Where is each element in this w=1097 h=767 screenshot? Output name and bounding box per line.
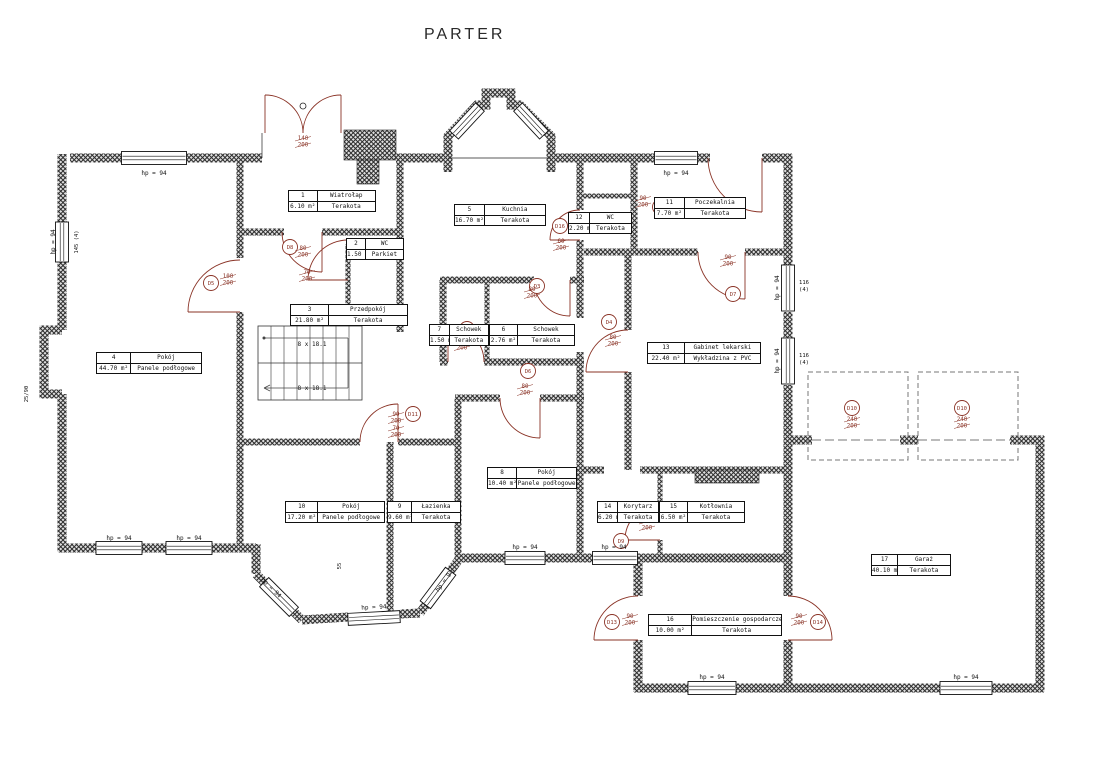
- window-frame: [122, 152, 187, 165]
- door-tag-label: D10: [847, 406, 857, 412]
- door-tag-label: D6: [525, 369, 532, 375]
- door: [586, 330, 628, 372]
- door-dimension: 240200: [844, 417, 860, 430]
- door-dimension-text: 90: [393, 412, 400, 418]
- door-swing-arc: [586, 330, 628, 372]
- window: [122, 152, 187, 165]
- window: [348, 611, 401, 626]
- door-tag: D13: [605, 615, 620, 630]
- door-dimension-text: 200: [457, 346, 468, 352]
- annotation-label: hp = 94: [361, 603, 387, 611]
- room-name: Pokój: [131, 353, 201, 363]
- room-material: Parkiet: [366, 250, 403, 260]
- room-area: 22.40 m²: [648, 354, 685, 364]
- room-table-kuchnia: 5Kuchnia 16.70 m²Terakota: [454, 204, 546, 226]
- wall-segment: [44, 330, 62, 394]
- room-name: Wiatrołap: [318, 191, 375, 201]
- door-dimension-text: 90: [627, 614, 634, 620]
- door-tag: D14: [811, 615, 826, 630]
- door-dimension: 70200: [299, 270, 315, 283]
- door-swing-arc: [303, 95, 341, 133]
- window-frame: [166, 542, 212, 555]
- door-dimension-text: 90: [725, 255, 732, 261]
- room-name: Poczekalnia: [685, 198, 745, 208]
- room-name: Pokój: [318, 502, 384, 512]
- door-tag-label: D5: [208, 281, 215, 287]
- window: [166, 542, 212, 555]
- window: [655, 152, 698, 165]
- room-table-kotlownia: 15Kotłownia 6.50 m²Terakota: [659, 501, 745, 523]
- wall-segment: [344, 130, 396, 160]
- door-dimension-text: 200: [847, 424, 858, 430]
- window: [940, 682, 992, 695]
- door: [500, 398, 540, 438]
- room-material: Panele podłogowe: [318, 513, 384, 523]
- room-area: 2.76 m²: [490, 336, 518, 346]
- room-number: 12: [569, 213, 590, 223]
- room-number: 1: [289, 191, 318, 201]
- door-dimension-text: 80: [529, 287, 536, 293]
- room-table-lazienka: 9Łazienka 9.60 m²Terakota: [387, 501, 461, 523]
- door-dimension-text: 200: [527, 294, 538, 300]
- room-number: 5: [455, 205, 485, 215]
- window: [505, 552, 545, 565]
- door-dimension-text: 200: [608, 342, 619, 348]
- room-table-pokoj-10: 10Pokój 17.20 m²Panele podłogowe: [285, 501, 385, 523]
- window-frame: [56, 222, 69, 262]
- door-tag-label: D16: [555, 224, 565, 230]
- window-frame: [940, 682, 992, 695]
- room-number: 2: [347, 239, 366, 249]
- wall-segment: [302, 617, 348, 620]
- stair-arrow-start: [263, 337, 266, 340]
- room-table-gospodarcze: 16Pomieszczenie gospodarcze 10.00 m²Tera…: [648, 614, 782, 636]
- door-tag: D5: [204, 276, 219, 291]
- window: [782, 338, 795, 384]
- room-area: 16.70 m²: [455, 216, 485, 226]
- door-tag: D10: [955, 401, 970, 416]
- window-frame: [96, 542, 142, 555]
- door-dimension-text: 200: [298, 143, 309, 149]
- door-dimension-text: 140: [298, 136, 309, 142]
- room-material: Panele podłogowe: [131, 364, 201, 374]
- room-name: Pomieszczenie gospodarcze: [692, 615, 781, 625]
- door: [265, 95, 303, 133]
- room-area: 40.10 m²: [872, 566, 898, 576]
- annotation-label: hp = 94: [141, 170, 167, 177]
- room-material: Terakota: [412, 513, 460, 523]
- door-dimension-text: 80: [300, 246, 307, 252]
- wall-segment: [695, 470, 759, 483]
- room-area: 1.50 m²: [430, 336, 450, 346]
- room-table-wc-2: 2WC 1.50 m²Parkiet: [346, 238, 404, 260]
- room-material: Terakota: [318, 202, 375, 212]
- window: [56, 222, 69, 262]
- door-tag-label: D13: [607, 620, 617, 626]
- room-name: Łazienka: [412, 502, 460, 512]
- annotation-label: hp = 94: [50, 229, 57, 255]
- room-name: Korytarz: [618, 502, 658, 512]
- annotation-label: 25/90: [24, 386, 30, 403]
- door-dimension-text: 240: [847, 417, 858, 423]
- door-knob-icon: [300, 103, 306, 109]
- room-material: Wykładzina z PVC: [685, 354, 760, 364]
- annotation-label: hp = 94: [176, 535, 202, 542]
- door-dimension-text: 200: [302, 277, 313, 283]
- window-frame: [514, 103, 549, 139]
- room-number: 7: [430, 325, 450, 335]
- page-title: PARTER: [424, 26, 505, 44]
- door-tag: D6: [521, 364, 536, 379]
- door-dimension-text: 200: [957, 424, 968, 430]
- room-area: 10.00 m²: [649, 626, 692, 636]
- room-area: 10.40 m²: [488, 479, 517, 489]
- door-dimension-text: 80: [522, 384, 529, 390]
- annotation-label: 116: [799, 353, 809, 359]
- door-tag: D8: [283, 240, 298, 255]
- door-dimension-text: 70: [304, 270, 311, 276]
- room-name: Schowek: [518, 325, 574, 335]
- window-frame: [782, 338, 795, 384]
- room-area: 7.70 m²: [655, 209, 685, 219]
- room-area: 6.50 m²: [660, 513, 688, 523]
- annotation-label: hp = 94: [953, 674, 979, 681]
- room-material: Terakota: [688, 513, 744, 523]
- windows-layer: [56, 103, 993, 694]
- room-number: 6: [490, 325, 518, 335]
- door-dimension: 90200: [791, 614, 807, 627]
- door-tag-label: D14: [813, 620, 824, 626]
- room-name: Gabinet lekarski: [685, 343, 760, 353]
- door-dimension: 140200: [295, 136, 311, 149]
- floorplan-page: PARTER D8D2D5D3D4D6D7D12D16D11D13D14D9D1…: [0, 0, 1097, 767]
- room-material: Terakota: [692, 626, 781, 636]
- door-tag: D11: [406, 407, 421, 422]
- room-material: Terakota: [518, 336, 574, 346]
- room-name: WC: [366, 239, 403, 249]
- carport-dashed-outline: [918, 372, 1018, 460]
- door-dimension-text: 200: [391, 433, 402, 439]
- window-frame: [450, 103, 485, 139]
- wall-segment: [357, 160, 379, 184]
- door-swing-arc: [265, 95, 303, 133]
- room-name: Kuchnia: [485, 205, 545, 215]
- annotation-label: (4): [799, 287, 809, 293]
- annotation-label: (4): [799, 360, 809, 366]
- room-number: 14: [598, 502, 618, 512]
- door: [308, 240, 348, 280]
- window-frame: [505, 552, 545, 565]
- room-area: 2.20 m²: [569, 224, 590, 234]
- room-table-garaz: 17Garaż 40.10 m²Terakota: [871, 554, 951, 576]
- door-dimension: 60200: [553, 239, 569, 252]
- room-name: Kotłownia: [688, 502, 744, 512]
- window-frame: [655, 152, 698, 165]
- door-dimension-text: 200: [723, 262, 734, 268]
- room-name: Garaż: [898, 555, 950, 565]
- room-table-schowek-6: 6Schowek 2.76 m²Terakota: [489, 324, 575, 346]
- door-dimension-text: 200: [223, 281, 234, 287]
- door-tag: D4: [602, 315, 617, 330]
- room-material: Terakota: [590, 224, 631, 234]
- annotation-label: 145 (4): [74, 230, 80, 253]
- room-number: 11: [655, 198, 685, 208]
- room-area: 9.60 m²: [388, 513, 412, 523]
- door-tag-label: D8: [287, 245, 294, 251]
- room-number: 3: [291, 305, 329, 315]
- room-number: 15: [660, 502, 688, 512]
- door-tag-label: D11: [408, 412, 418, 418]
- door-dimension-text: 70: [393, 426, 400, 432]
- window: [593, 552, 638, 565]
- door-dimension: 90200: [388, 412, 404, 425]
- door-dimension-text: 90: [796, 614, 803, 620]
- room-area: 21.80 m²: [291, 316, 329, 326]
- room-table-wiatrolap: 1Wiatrołap 6.10 m²Terakota: [288, 190, 376, 212]
- door-dimension: 240200: [954, 417, 970, 430]
- room-number: 17: [872, 555, 898, 565]
- room-table-korytarz: 14Korytarz 6.20 m²Terakota: [597, 501, 659, 523]
- room-number: 4: [97, 353, 131, 363]
- annotation-label: hp = 94: [663, 170, 689, 177]
- door-dimension-text: 240: [957, 417, 968, 423]
- door-dimension-text: 200: [794, 621, 805, 627]
- room-table-schowek-7: 7Schowek 1.50 m²Terakota: [429, 324, 489, 346]
- door-dimension: 80200: [605, 335, 621, 348]
- window: [688, 682, 736, 695]
- room-number: 16: [649, 615, 692, 625]
- door-tag-label: D7: [730, 292, 737, 298]
- door-dimension-text: 60: [558, 239, 565, 245]
- annotation-label: hp = 94: [106, 535, 132, 542]
- annotation-label: 116: [799, 280, 809, 286]
- window-frame: [688, 682, 736, 695]
- labels-layer: hp = 94hp = 94hp = 94hp = 94hp = 94hp = …: [24, 170, 979, 681]
- door: [303, 95, 341, 133]
- room-table-wc-12: 12WC 2.20 m²Terakota: [568, 212, 632, 234]
- room-name: Pokój: [517, 468, 576, 478]
- annotation-label: 55: [337, 563, 343, 570]
- room-area: 6.10 m²: [289, 202, 318, 212]
- window: [782, 265, 795, 311]
- room-area: 44.70 m²: [97, 364, 131, 374]
- room-material: Terakota: [450, 336, 488, 346]
- annotation-label: hp = 94: [512, 544, 538, 551]
- door-dimension: 80200: [517, 384, 533, 397]
- room-material: Terakota: [618, 513, 658, 523]
- door-tag: D16: [553, 219, 568, 234]
- door-dimension: 90200: [720, 255, 736, 268]
- room-table-przedpokoj: 3Przedpokój 21.80 m²Terakota: [290, 304, 408, 326]
- room-number: 8: [488, 468, 517, 478]
- door-dimension: 100200: [220, 274, 236, 287]
- carport-dashed-outline: [808, 372, 908, 460]
- room-name: WC: [590, 213, 631, 223]
- wall-segment: [400, 613, 420, 614]
- walls-layer: [44, 93, 1044, 692]
- floorplan-drawing: D8D2D5D3D4D6D7D12D16D11D13D14D9D10D10140…: [0, 0, 1097, 767]
- annotation-label: hp = 94: [774, 348, 781, 374]
- door-swing-arc: [500, 398, 540, 438]
- room-table-pokoj-8: 8Pokój 10.40 m²Panele podłogowe: [487, 467, 577, 489]
- annotation-label: 8 x 18.1: [298, 385, 327, 392]
- room-material: Terakota: [329, 316, 407, 326]
- window-frame: [593, 552, 638, 565]
- door-dimension-text: 200: [642, 526, 653, 532]
- room-material: Panele podłogowe: [517, 479, 576, 489]
- window: [450, 103, 485, 139]
- annotation-label: 8 x 18.1: [298, 341, 327, 348]
- door-dimension-text: 200: [298, 253, 309, 259]
- room-table-gabinet: 13Gabinet lekarski 22.40 m²Wykładzina z …: [647, 342, 761, 364]
- door-dimension-text: 100: [223, 274, 234, 280]
- window-frame: [782, 265, 795, 311]
- door-tag: D7: [726, 287, 741, 302]
- door-dimension-text: 200: [556, 246, 567, 252]
- door-tag-label: D4: [606, 320, 613, 326]
- room-table-poczekalnia: 11Poczekalnia 7.70 m²Terakota: [654, 197, 746, 219]
- annotation-label: hp = 94: [601, 544, 627, 551]
- room-area: 6.20 m²: [598, 513, 618, 523]
- room-number: 10: [286, 502, 318, 512]
- door-tag-label: D10: [957, 406, 967, 412]
- door-dimension-text: 200: [625, 621, 636, 627]
- room-name: Schowek: [450, 325, 488, 335]
- room-area: 17.20 m²: [286, 513, 318, 523]
- room-name: Przedpokój: [329, 305, 407, 315]
- room-area: 1.50 m²: [347, 250, 366, 260]
- door-swing-arc: [308, 240, 348, 280]
- room-number: 13: [648, 343, 685, 353]
- door-dimension: 90200: [622, 614, 638, 627]
- door-dimension-text: 200: [638, 203, 649, 209]
- door-dimension: 70200: [388, 426, 404, 439]
- room-table-pokoj-4: 4Pokój 44.70 m²Panele podłogowe: [96, 352, 202, 374]
- annotation-label: hp = 94: [774, 275, 781, 301]
- room-material: Terakota: [485, 216, 545, 226]
- room-material: Terakota: [685, 209, 745, 219]
- door-dimension-text: 200: [391, 419, 402, 425]
- annotation-label: hp = 94: [699, 674, 725, 681]
- door-tag: D10: [845, 401, 860, 416]
- door-dimension-text: 80: [610, 335, 617, 341]
- window: [96, 542, 142, 555]
- door-dimension-text: 200: [520, 391, 531, 397]
- door-dimension-text: 90: [640, 196, 647, 202]
- room-material: Terakota: [898, 566, 950, 576]
- window: [514, 103, 549, 139]
- window-frame: [348, 611, 401, 626]
- room-number: 9: [388, 502, 412, 512]
